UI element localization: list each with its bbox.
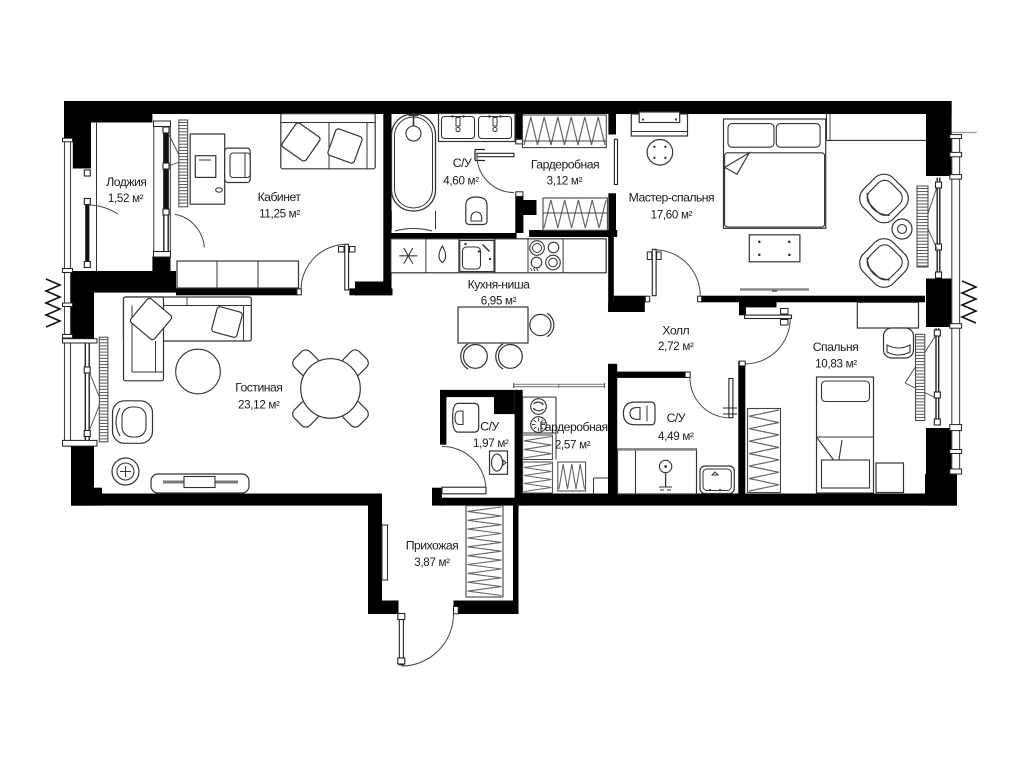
svg-text:3,87 м²: 3,87 м² xyxy=(414,556,450,569)
svg-text:23,12 м²: 23,12 м² xyxy=(238,398,280,411)
svg-text:17,60 м²: 17,60 м² xyxy=(651,208,693,221)
svg-text:6,95 м²: 6,95 м² xyxy=(481,294,517,307)
svg-text:2,57 м²: 2,57 м² xyxy=(555,439,591,452)
svg-text:Спальня: Спальня xyxy=(813,340,858,354)
svg-text:Гардеробная: Гардеробная xyxy=(539,420,607,434)
svg-text:1,97 м²: 1,97 м² xyxy=(473,437,509,450)
svg-text:Кухня-ниша: Кухня-ниша xyxy=(468,277,530,291)
svg-text:Мастер-спальня: Мастер-спальня xyxy=(629,191,714,205)
svg-text:3,12 м²: 3,12 м² xyxy=(547,175,583,188)
svg-text:Кабинет: Кабинет xyxy=(258,190,302,204)
svg-text:11,25 м²: 11,25 м² xyxy=(259,208,300,221)
svg-text:4,60 м²: 4,60 м² xyxy=(443,175,479,188)
svg-text:С/У: С/У xyxy=(480,419,499,433)
svg-text:Гостиная: Гостиная xyxy=(235,381,282,395)
svg-text:10,83 м²: 10,83 м² xyxy=(815,357,857,370)
svg-text:С/У: С/У xyxy=(667,411,686,425)
svg-text:Прихожая: Прихожая xyxy=(406,539,458,553)
svg-text:1,52 м²: 1,52 м² xyxy=(108,192,144,205)
svg-text:Гардеробная: Гардеробная xyxy=(531,158,599,172)
svg-text:2,72 м²: 2,72 м² xyxy=(658,340,694,353)
svg-text:С/У: С/У xyxy=(453,156,472,170)
svg-text:Лоджия: Лоджия xyxy=(106,175,146,189)
svg-text:4,49 м²: 4,49 м² xyxy=(658,430,694,443)
svg-text:Холл: Холл xyxy=(662,324,689,338)
